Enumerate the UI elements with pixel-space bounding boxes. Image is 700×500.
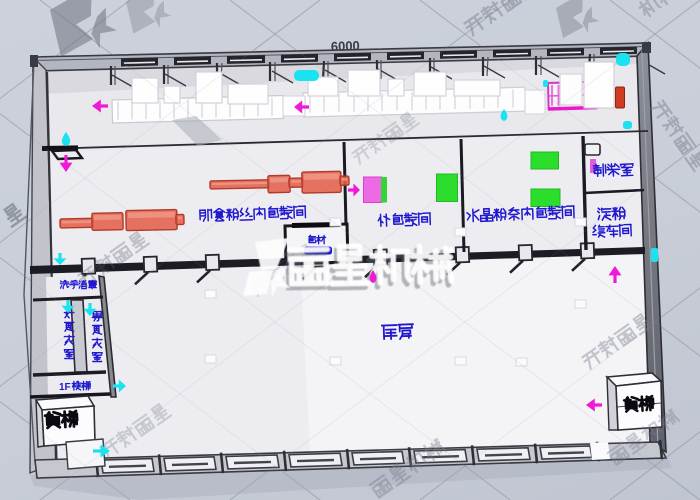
svg-text:6000: 6000 [331, 38, 360, 54]
svg-text:1F: 1F [59, 382, 71, 393]
